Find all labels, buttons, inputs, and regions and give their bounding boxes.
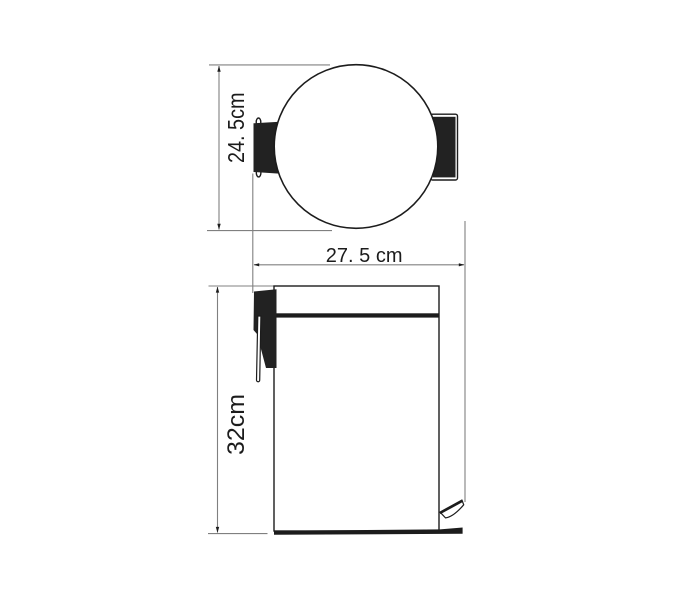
- svg-text:27. 5 cm: 27. 5 cm: [326, 245, 403, 267]
- svg-text:24. 5cm: 24. 5cm: [223, 93, 249, 164]
- svg-text:32cm: 32cm: [223, 394, 250, 455]
